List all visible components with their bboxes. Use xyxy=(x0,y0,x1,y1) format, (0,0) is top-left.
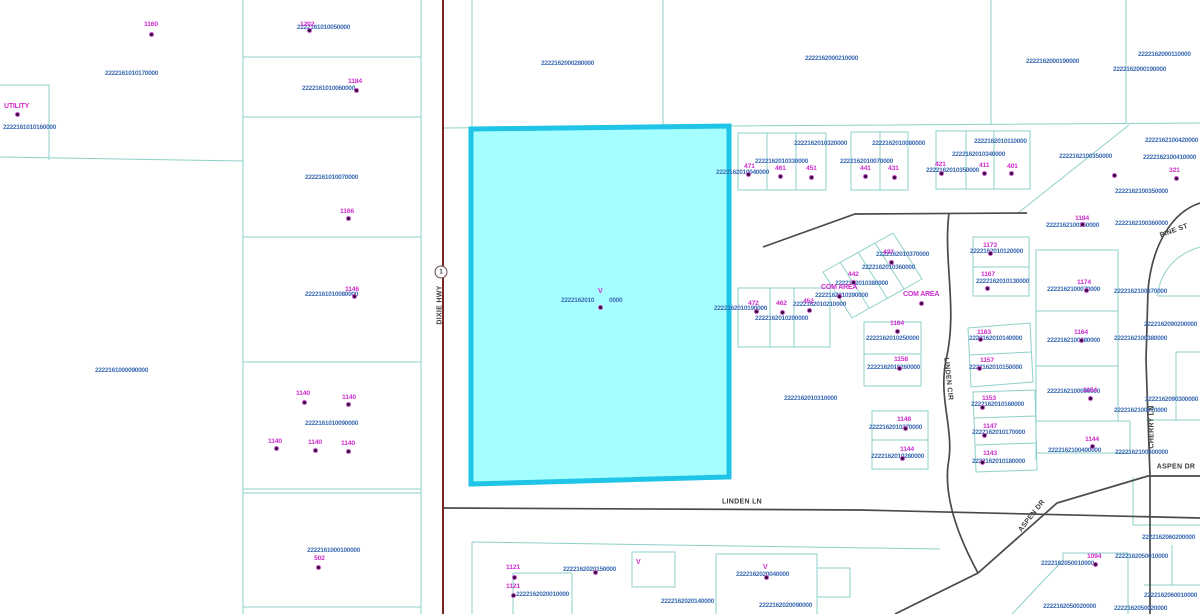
parcel-point-marker xyxy=(1089,397,1092,400)
parcel-point-marker xyxy=(594,571,597,574)
parcel-point-marker xyxy=(755,310,758,313)
parcel-id-label: 2222162000110000 xyxy=(1138,52,1191,59)
house-number-label: 1174 xyxy=(1077,280,1091,287)
parcel-point-marker xyxy=(896,330,899,333)
house-number-label: 1184 xyxy=(348,79,362,86)
parcel-point-marker xyxy=(852,281,855,284)
parcel-point-marker xyxy=(781,311,784,314)
parcel-id-label: 2222162010250000 xyxy=(866,336,919,343)
map-labels-layer: 2222161010170000222216101005000022221610… xyxy=(0,0,1200,614)
parcel-id-label: 2222162010040000 xyxy=(716,170,769,177)
house-number-label: 1160 xyxy=(144,22,158,29)
parcel-point-marker xyxy=(979,338,982,341)
parcel-point-marker xyxy=(275,447,278,450)
parcel-id-label: 2222162010360000 xyxy=(862,265,915,272)
parcel-map-canvas[interactable]: 2222161010170000222216101005000022221610… xyxy=(0,0,1200,614)
house-number-label: 1202 xyxy=(300,22,314,29)
house-number-label: 1166 xyxy=(340,209,354,216)
parcel-id-label: 2222162010200000 xyxy=(755,316,808,323)
house-number-label: 321 xyxy=(1169,168,1180,175)
house-number-label: 471 xyxy=(744,164,755,171)
parcel-point-marker xyxy=(989,252,992,255)
parcel-id-label: 2222162100080000 xyxy=(1047,338,1100,345)
parcel-id-label: 2222162050020000 xyxy=(1114,606,1167,613)
parcel-id-label: 2222162100350000 xyxy=(1115,189,1168,196)
house-number-label: 437 xyxy=(883,250,894,257)
street-name-label: LINDEN CIR xyxy=(942,357,953,401)
parcel-id-label: 2222162010270000 xyxy=(869,425,922,432)
parcel-id-label: 2222162020090000 xyxy=(759,603,812,610)
parcel-point-marker xyxy=(355,89,358,92)
street-name-label: CHERRY LN xyxy=(1149,405,1156,448)
parcel-id-label: 2222162020010000 xyxy=(516,592,569,599)
house-number-label: 442 xyxy=(848,272,859,279)
parcel-id-label: 2222162010120000 xyxy=(970,249,1023,256)
parcel-id-label: 2222162010180000 xyxy=(972,459,1025,466)
parcel-id-label: 2222162090300000 xyxy=(1145,397,1198,404)
parcel-id-label: 2222162020150000 xyxy=(563,567,616,574)
parcel-point-marker xyxy=(1094,563,1097,566)
parcel-point-marker xyxy=(150,33,153,36)
parcel-point-marker xyxy=(1091,445,1094,448)
parcel-point-marker xyxy=(512,594,515,597)
parcel-point-marker xyxy=(308,29,311,32)
parcel-id-label: 2222162000190000 xyxy=(1026,59,1079,66)
house-number-label: 1121 xyxy=(506,584,520,591)
parcel-id-label: 2222161010060000 xyxy=(302,86,355,93)
v-marker: V xyxy=(636,559,641,566)
parcel-id-label: 2222162010280000 xyxy=(871,454,924,461)
parcel-id-label: 2222162010 xyxy=(561,298,594,305)
parcel-id-label: 2222162100420000 xyxy=(1145,138,1198,145)
parcel-id-label: 2222162090200000 xyxy=(1144,322,1197,329)
parcel-point-marker xyxy=(983,172,986,175)
street-name-label: ASPEN DR xyxy=(1017,499,1046,534)
house-number-label: 1157 xyxy=(980,358,994,365)
parcel-id-label: 2222162010350000 xyxy=(926,168,979,175)
parcel-point-marker xyxy=(898,367,901,370)
parcel-point-marker xyxy=(920,302,923,305)
house-number-label: 441 xyxy=(860,166,871,173)
house-number-label: 1140 xyxy=(341,441,355,448)
parcel-id-label: 2222162100070000 xyxy=(1114,408,1167,415)
v-marker: V xyxy=(763,564,768,571)
parcel-point-marker xyxy=(779,175,782,178)
parcel-id-label: 2222162010080000 xyxy=(872,141,925,148)
house-number-label: 452 xyxy=(803,299,814,306)
parcel-id-label: 2222162010130000 xyxy=(976,279,1029,286)
parcel-point-marker xyxy=(747,173,750,176)
house-number-label: 502 xyxy=(314,556,325,563)
parcel-point-marker xyxy=(1113,174,1116,177)
parcel-id-label: 2222162010170000 xyxy=(972,430,1025,437)
parcel-point-marker xyxy=(353,295,356,298)
parcel-point-marker xyxy=(1175,177,1178,180)
parcel-point-marker xyxy=(986,287,989,290)
house-number-label: 1121 xyxy=(506,565,520,572)
house-number-label: 1144 xyxy=(900,447,914,454)
house-number-label: 451 xyxy=(806,166,817,173)
parcel-point-marker xyxy=(1081,223,1084,226)
parcel-id-label: 2222161010070000 xyxy=(305,175,358,182)
parcel-id-label: 2222162060010000 xyxy=(1144,593,1197,600)
house-number-label: 1144 xyxy=(1085,437,1099,444)
parcel-point-marker xyxy=(347,217,350,220)
parcel-point-marker xyxy=(765,576,768,579)
house-number-label: 1163 xyxy=(977,330,991,337)
parcel-id-label: 2222162050010000 xyxy=(1115,554,1168,561)
parcel-id-label: 2222162010160000 xyxy=(971,402,1024,409)
route-1-shield: 1 xyxy=(435,266,448,279)
street-name-label: DIXIE HWY xyxy=(437,285,444,324)
parcel-point-marker xyxy=(317,566,320,569)
house-number-label: 1167 xyxy=(981,272,995,279)
parcel-id-label: 2222162000210000 xyxy=(805,56,858,63)
parcel-point-marker xyxy=(838,295,841,298)
house-number-label: 1164 xyxy=(890,321,904,328)
parcel-id-label: 2222162050020000 xyxy=(1043,604,1096,611)
parcel-id-label: 2222162000280000 xyxy=(541,61,594,68)
parcel-point-marker xyxy=(864,175,867,178)
house-number-label: 1148 xyxy=(897,417,911,424)
street-name-label: LINDEN LN xyxy=(722,499,762,506)
house-number-label: 1146 xyxy=(345,287,359,294)
parcel-id-label: 2222162000190000 xyxy=(1113,67,1166,74)
parcel-id-label: 2222162100370000 xyxy=(1114,289,1167,296)
parcel-id-label: 2222162010390000 xyxy=(815,293,868,300)
parcel-point-marker xyxy=(1085,289,1088,292)
parcel-id-label: 2222162020140000 xyxy=(661,599,714,606)
parcel-id-label: 2222162010340000 xyxy=(952,152,1005,159)
parcel-point-marker xyxy=(810,176,813,179)
house-number-label: 1184 xyxy=(1075,216,1089,223)
parcel-id-label: 2222162050010000 xyxy=(1041,561,1094,568)
parcel-point-marker xyxy=(599,306,602,309)
parcel-point-marker xyxy=(314,449,317,452)
parcel-point-marker xyxy=(904,427,907,430)
parcel-id-label: 2222162100360000 xyxy=(1046,223,1099,230)
house-number-label: 431 xyxy=(888,166,899,173)
house-number-label: 411 xyxy=(979,163,989,170)
house-number-label: 1147 xyxy=(983,424,997,431)
house-number-label: 1158 xyxy=(894,357,908,364)
parcel-point-marker xyxy=(890,261,893,264)
parcel-point-marker xyxy=(893,176,896,179)
parcel-point-marker xyxy=(303,401,306,404)
parcel-id-label: 2222162100400000 xyxy=(1048,448,1101,455)
parcel-id-label: 2222162060200000 xyxy=(1142,535,1195,542)
parcel-id-label: 2222162010210000 xyxy=(793,302,846,309)
parcel-id-label: 2222162100380000 xyxy=(1114,336,1167,343)
parcel-point-marker xyxy=(1010,172,1013,175)
house-number-label: 461 xyxy=(775,166,786,173)
parcel-id-label: 2222162010310000 xyxy=(784,396,837,403)
house-number-label: 1164 xyxy=(1074,330,1088,337)
parcel-id-label: 2222162010260000 xyxy=(867,365,920,372)
parcel-id-label: 2222162020040000 xyxy=(736,572,789,579)
street-name-label: ASPEN DR xyxy=(1157,464,1196,471)
parcel-point-marker xyxy=(983,434,986,437)
parcel-point-marker xyxy=(513,576,516,579)
house-number-label: 401 xyxy=(1007,164,1018,171)
parcel-id-label: 2222161000100000 xyxy=(307,548,360,555)
house-number-label: 1173 xyxy=(983,243,997,250)
area-label: UTILITY xyxy=(4,103,29,110)
house-number-label: 421 xyxy=(935,162,946,169)
parcel-point-marker xyxy=(981,406,984,409)
house-number-label: 1154 xyxy=(1083,388,1097,395)
parcel-id-label: 2222162100350000 xyxy=(1059,154,1112,161)
parcel-id-label: 2222162100360000 xyxy=(1115,221,1168,228)
parcel-point-marker xyxy=(1080,339,1083,342)
house-number-label: 462 xyxy=(776,301,787,308)
parcel-id-label: 2222162100400000 xyxy=(1115,450,1168,457)
parcel-id-label: 2222162010320000 xyxy=(794,141,847,148)
v-marker: V xyxy=(598,288,603,295)
parcel-id-label: 2222162010140000 xyxy=(969,336,1022,343)
parcel-id-label: 0000 xyxy=(609,298,622,305)
parcel-id-label: 2222162010150000 xyxy=(969,365,1022,372)
parcel-point-marker xyxy=(808,309,811,312)
parcel-id-label: 2222162100410000 xyxy=(1143,155,1196,162)
parcel-id-label: 2222161010170000 xyxy=(105,71,158,78)
house-number-label: 1094 xyxy=(1087,554,1101,561)
parcel-point-marker xyxy=(901,457,904,460)
parcel-id-label: 2222162010190000 xyxy=(714,306,767,313)
house-number-label: 1140 xyxy=(342,395,356,402)
parcel-point-marker xyxy=(981,461,984,464)
house-number-label: 1140 xyxy=(308,440,322,447)
parcel-id-label: 2222161010160000 xyxy=(3,125,56,132)
house-number-label: 1140 xyxy=(268,439,282,446)
parcel-id-label: 2222161010090000 xyxy=(305,421,358,428)
parcel-point-marker xyxy=(347,403,350,406)
area-label: COM AREA xyxy=(903,291,939,298)
parcel-point-marker xyxy=(347,450,350,453)
house-number-label: 472 xyxy=(748,301,759,308)
house-number-label: 1143 xyxy=(983,451,997,458)
house-number-label: 1140 xyxy=(296,391,310,398)
parcel-point-marker xyxy=(978,367,981,370)
parcel-id-label: 2222161000090000 xyxy=(95,368,148,375)
parcel-id-label: 2222162010110000 xyxy=(974,139,1027,146)
house-number-label: 1153 xyxy=(982,396,996,403)
parcel-point-marker xyxy=(16,113,19,116)
parcel-id-label: 2222162100070000 xyxy=(1047,287,1100,294)
area-label: COM AREA xyxy=(821,284,857,291)
parcel-point-marker xyxy=(940,172,943,175)
